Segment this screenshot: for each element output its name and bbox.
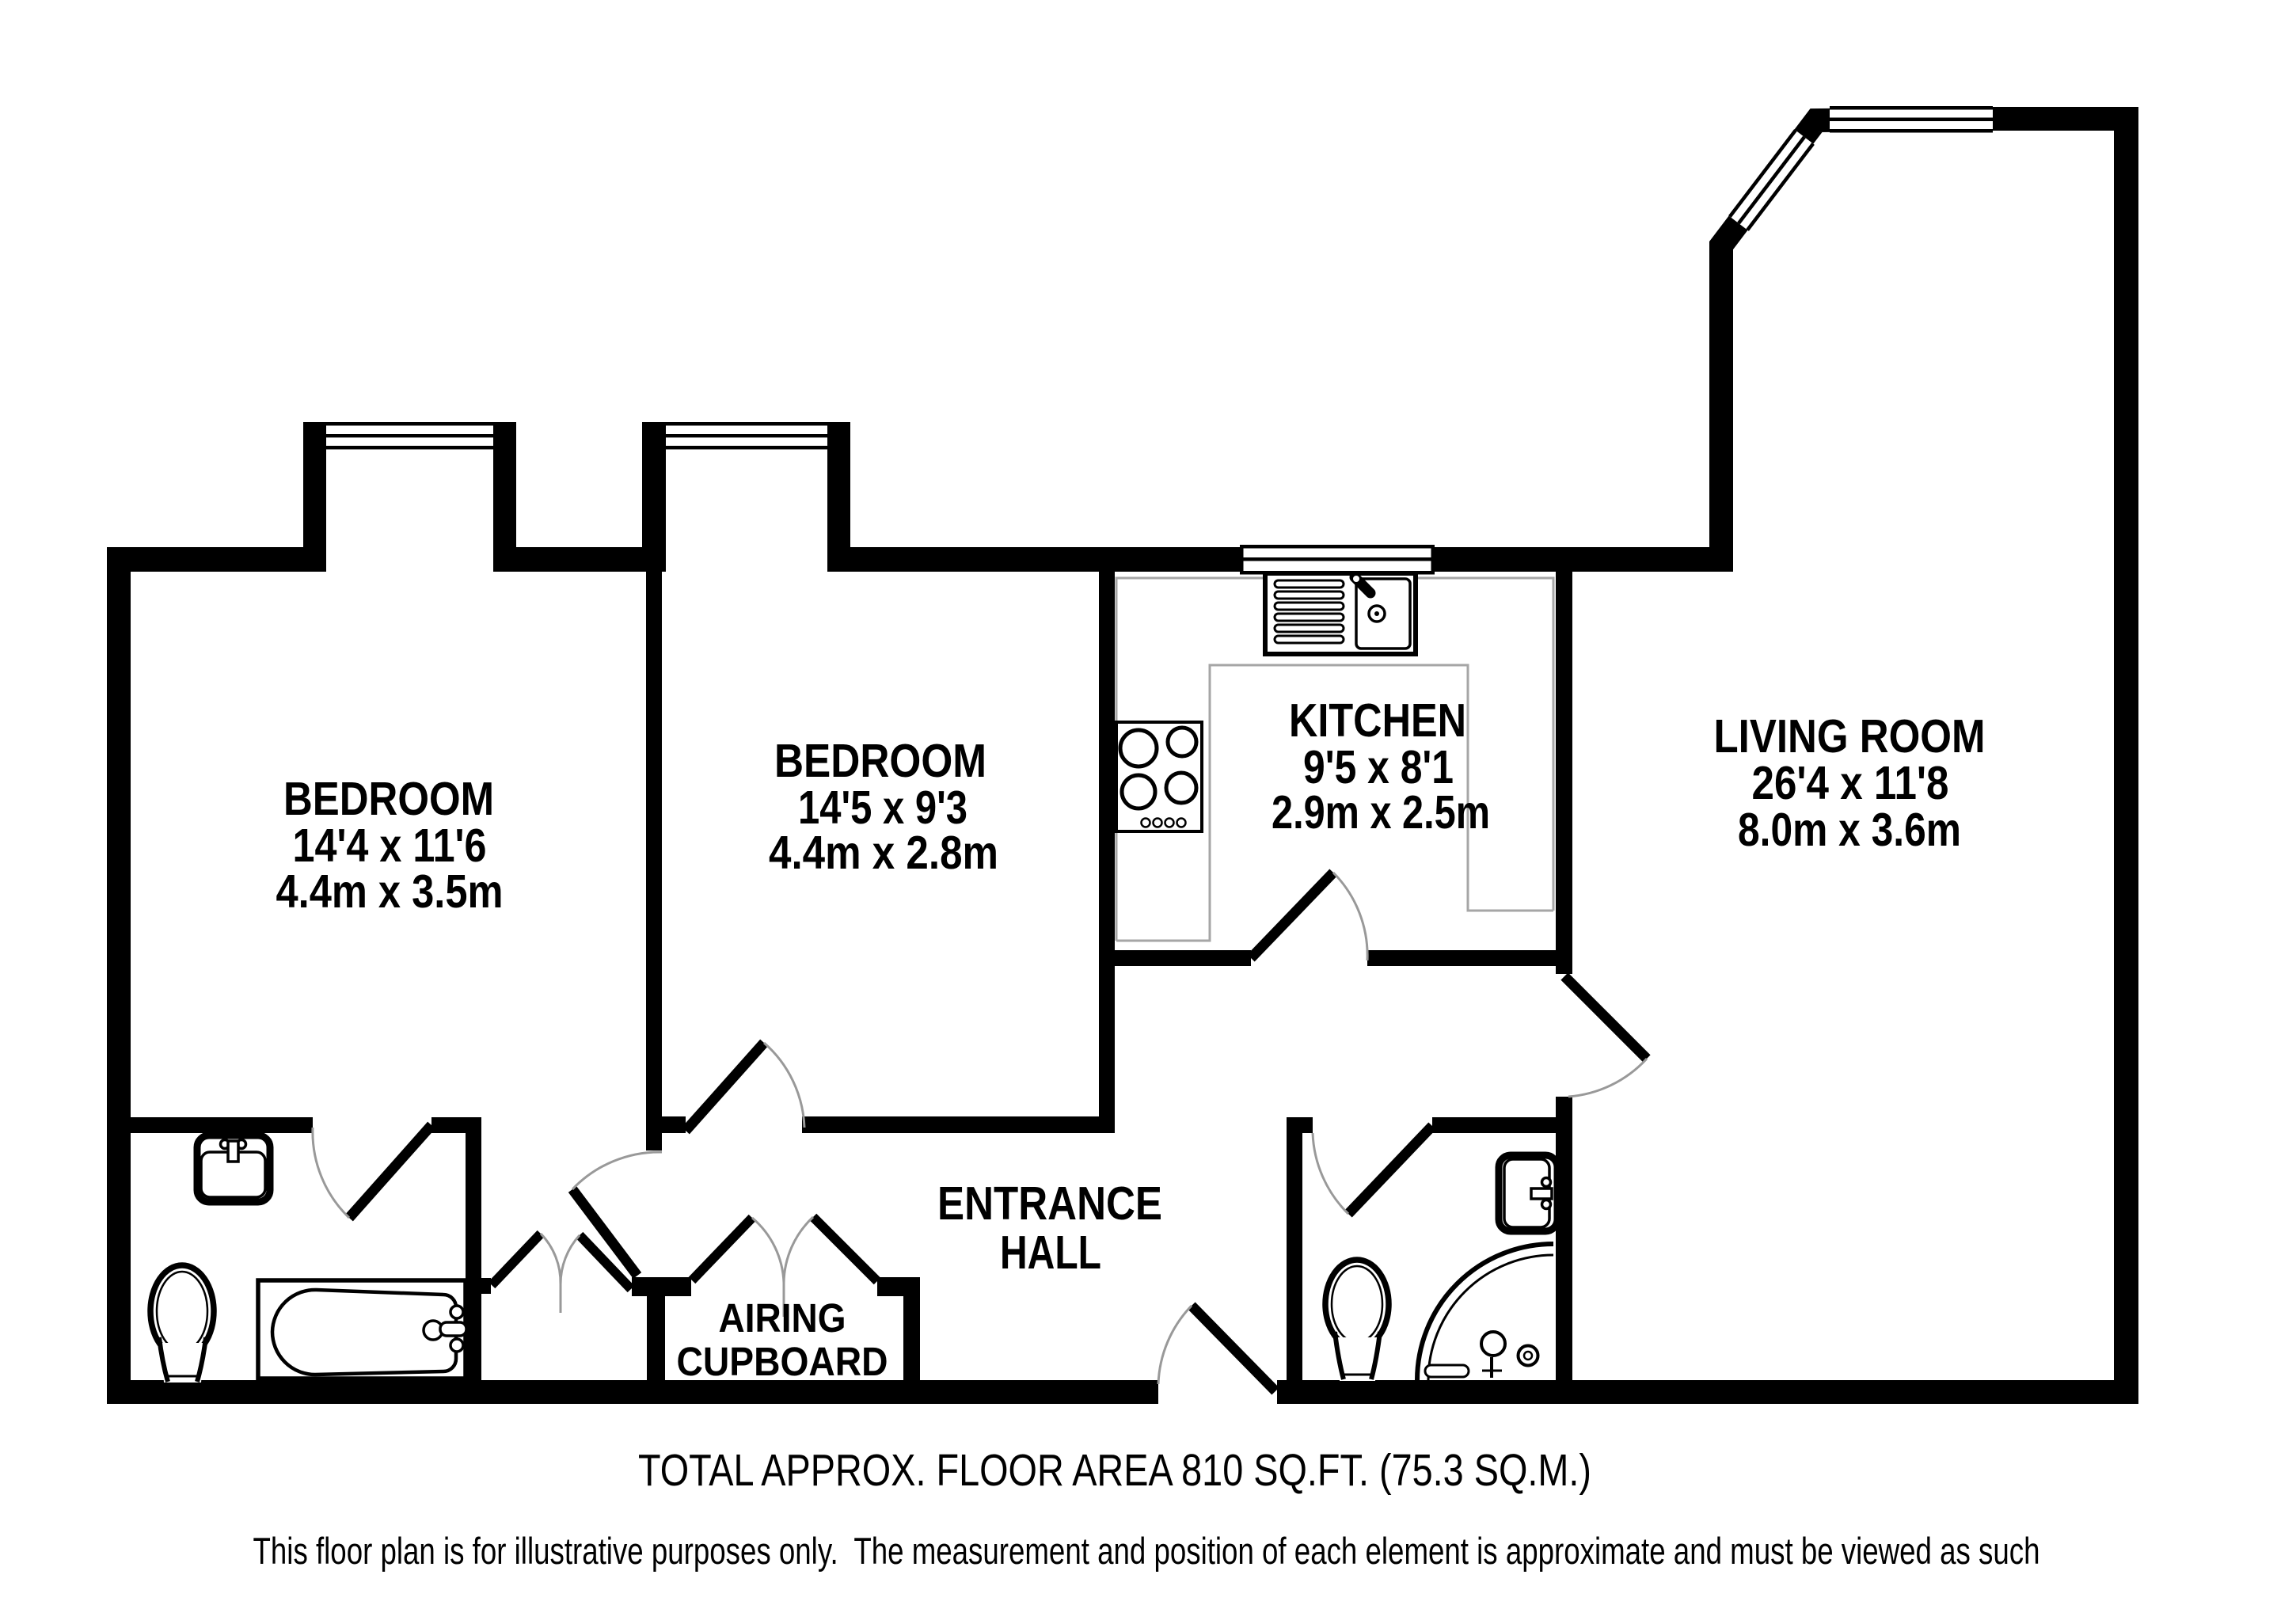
svg-text:14'4 x 11'6: 14'4 x 11'6 xyxy=(293,820,487,872)
svg-text:AIRING: AIRING xyxy=(719,1295,846,1341)
svg-text:TOTAL APPROX. FLOOR AREA 810 S: TOTAL APPROX. FLOOR AREA 810 SQ.FT. (75.… xyxy=(638,1445,1591,1496)
svg-text:KITCHEN: KITCHEN xyxy=(1289,694,1466,747)
svg-text:2.9m x 2.5m: 2.9m x 2.5m xyxy=(1272,786,1490,839)
svg-text:LIVING ROOM: LIVING ROOM xyxy=(1714,710,1986,763)
svg-text:This floor plan is for illustr: This floor plan is for illustrative purp… xyxy=(253,1530,2040,1572)
svg-text:4.4m x 3.5m: 4.4m x 3.5m xyxy=(276,865,504,918)
svg-text:8.0m x 3.6m: 8.0m x 3.6m xyxy=(1738,804,1961,856)
svg-text:HALL: HALL xyxy=(1000,1227,1101,1279)
svg-text:BEDROOM: BEDROOM xyxy=(283,773,494,825)
svg-text:BEDROOM: BEDROOM xyxy=(774,735,986,787)
svg-text:CUPBOARD: CUPBOARD xyxy=(677,1339,888,1384)
svg-text:26'4 x 11'8: 26'4 x 11'8 xyxy=(1752,757,1949,809)
svg-text:ENTRANCE: ENTRANCE xyxy=(937,1177,1162,1230)
svg-text:4.4m x 2.8m: 4.4m x 2.8m xyxy=(769,827,998,879)
